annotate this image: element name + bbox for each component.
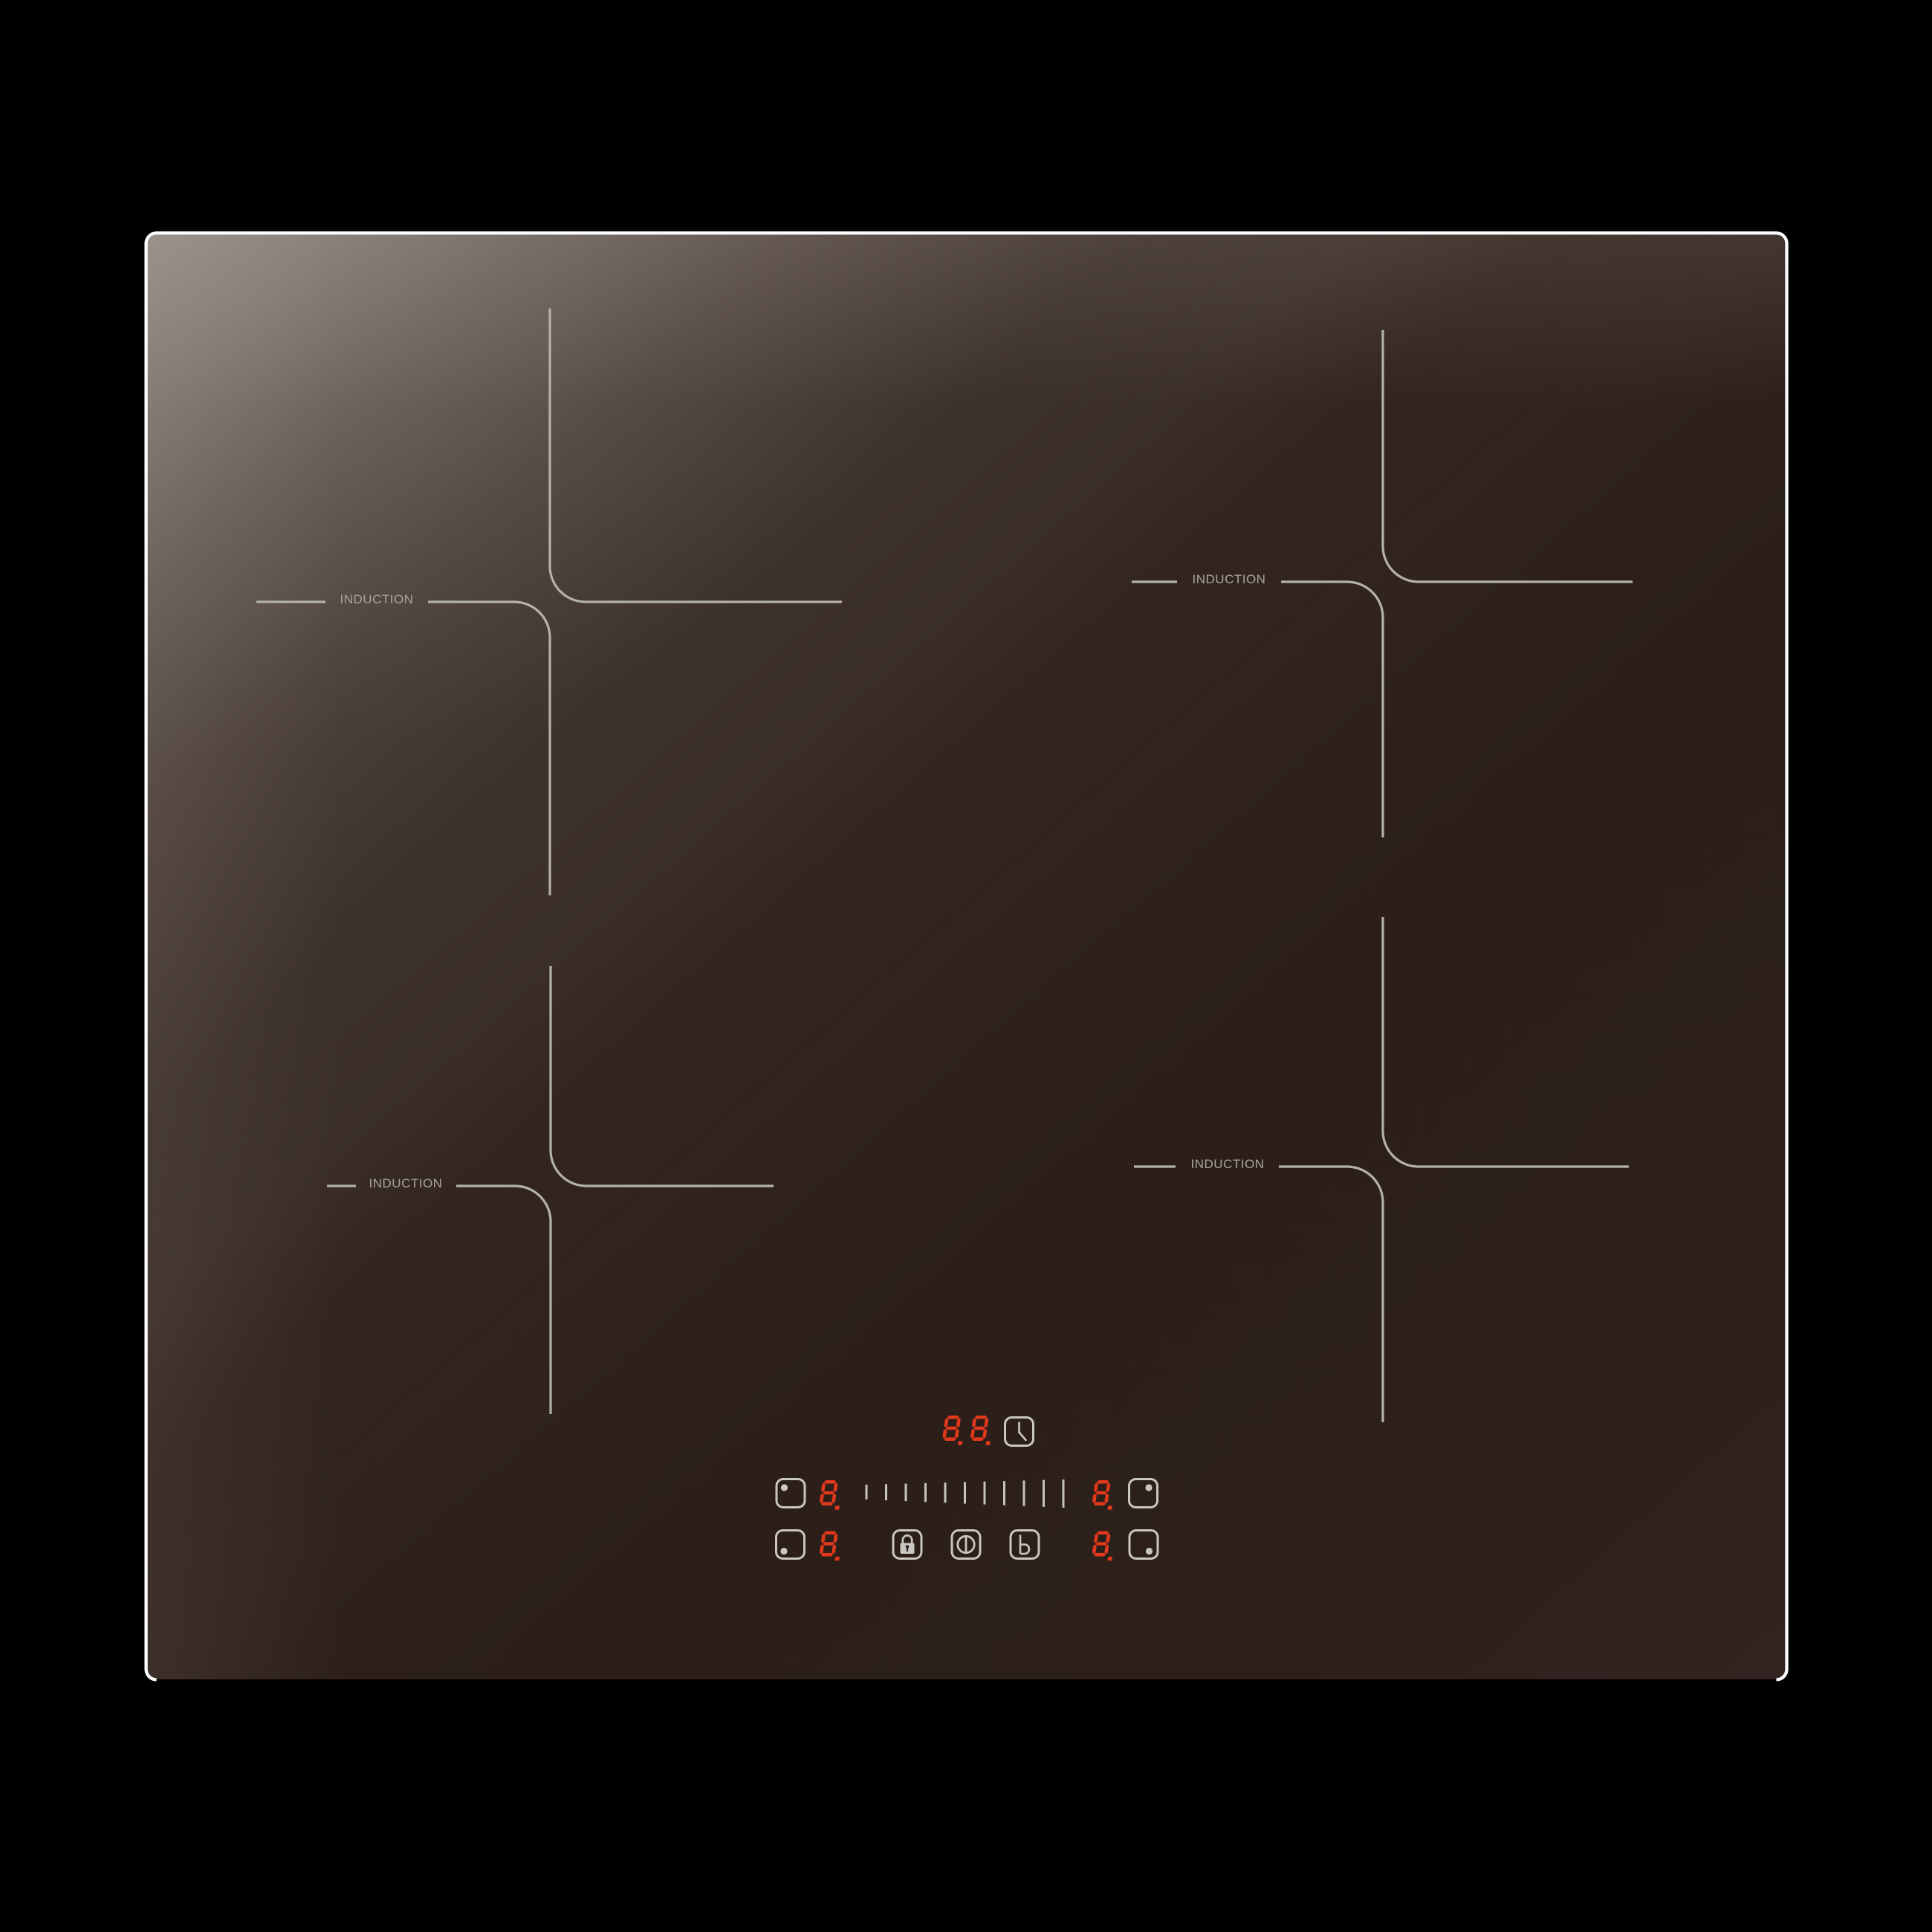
svg-text:INDUCTION: INDUCTION (369, 1176, 443, 1190)
svg-text:INDUCTION: INDUCTION (1191, 1157, 1265, 1171)
svg-text:INDUCTION: INDUCTION (1193, 572, 1266, 586)
svg-text:INDUCTION: INDUCTION (340, 592, 414, 606)
